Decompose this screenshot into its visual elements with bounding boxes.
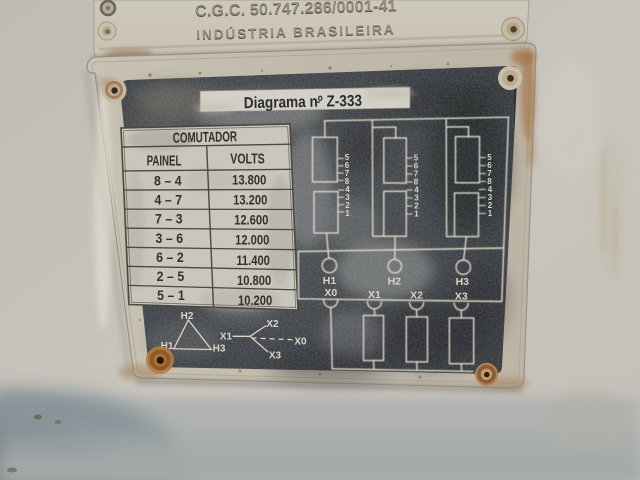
- svg-text:11.400: 11.400: [236, 253, 270, 268]
- svg-text:VOLTS: VOLTS: [230, 151, 264, 167]
- svg-text:10.800: 10.800: [237, 273, 271, 288]
- svg-text:7 – 3: 7 – 3: [155, 211, 183, 227]
- svg-text:12.600: 12.600: [234, 212, 268, 227]
- svg-text:5 – 1: 5 – 1: [157, 287, 185, 303]
- svg-text:X0: X0: [324, 287, 337, 299]
- svg-text:13.800: 13.800: [232, 172, 266, 187]
- svg-text:13.200: 13.200: [233, 192, 267, 207]
- svg-text:6 – 2: 6 – 2: [156, 249, 184, 265]
- svg-text:10.200: 10.200: [238, 293, 272, 308]
- svg-text:H2: H2: [388, 275, 402, 287]
- svg-text:X2: X2: [266, 319, 279, 330]
- svg-text:X1: X1: [368, 289, 381, 301]
- svg-text:X2: X2: [410, 289, 423, 301]
- svg-text:1: 1: [414, 210, 419, 219]
- svg-text:8 – 4: 8 – 4: [154, 173, 182, 189]
- svg-text:X0: X0: [294, 336, 307, 347]
- svg-text:1: 1: [488, 209, 493, 218]
- svg-text:PAINEL: PAINEL: [147, 153, 182, 169]
- svg-text:X3: X3: [455, 290, 468, 302]
- svg-text:X1: X1: [220, 332, 233, 343]
- svg-text:H2: H2: [181, 311, 194, 322]
- svg-text:Diagrama nº Z-333: Diagrama nº Z-333: [244, 93, 363, 113]
- svg-text:H1: H1: [323, 275, 337, 287]
- svg-text:H3: H3: [456, 276, 470, 288]
- svg-text:X3: X3: [269, 351, 282, 362]
- svg-text:3 – 6: 3 – 6: [156, 230, 184, 246]
- svg-text:12.000: 12.000: [235, 233, 269, 248]
- svg-text:H3: H3: [213, 344, 226, 355]
- svg-text:1: 1: [345, 209, 350, 218]
- svg-text:2 – 5: 2 – 5: [157, 268, 185, 284]
- svg-text:COMUTADOR: COMUTADOR: [173, 128, 238, 146]
- svg-text:4 – 7: 4 – 7: [155, 192, 183, 208]
